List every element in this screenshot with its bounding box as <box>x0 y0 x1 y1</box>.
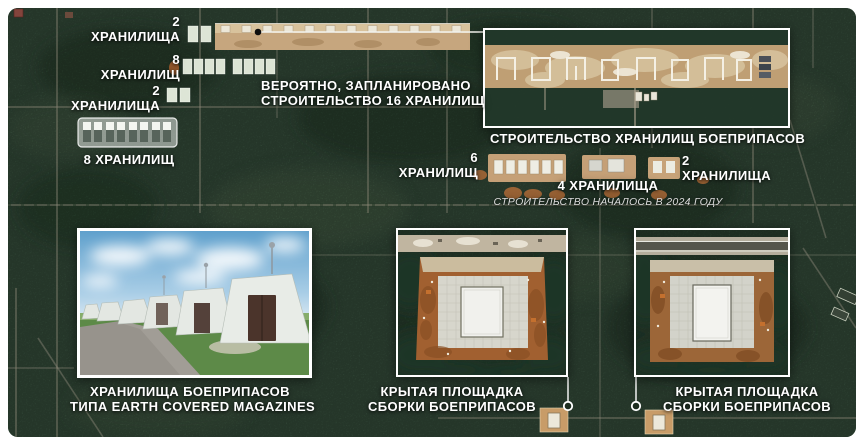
label-8-storages-row: 8 ХРАНИЛИЩ <box>61 152 197 167</box>
red-roof-building <box>14 9 23 17</box>
construction-started-note: СТРОИТЕЛЬСТВО НАЧАЛОСЬ В 2024 ГОДУ <box>468 195 748 210</box>
magazines-photo-inset <box>77 228 312 378</box>
label-noun: ХРАНИЛИЩА <box>91 29 180 44</box>
label-6-storages: 6 ХРАНИЛИЩ <box>370 150 478 180</box>
label-count: 2 <box>46 83 160 98</box>
label-count: 2 <box>682 153 812 168</box>
label-planned-construction: ВЕРОЯТНО, ЗАПЛАНИРОВАНО СТРОИТЕЛЬСТВО 16… <box>261 78 471 108</box>
construction-inset-art <box>485 30 788 126</box>
caption-line2: ТИПА EARTH COVERED MAGAZINES <box>70 399 315 414</box>
highlight-box-8-storages <box>78 118 177 147</box>
magazines-photo-art <box>80 231 309 375</box>
label-noun: ХРАНИЛИЩА <box>682 168 771 183</box>
annotated-satellite-graphic: 2 ХРАНИЛИЩА 8 ХРАНИЛИЩ 2 ХРАНИЛИЩА 8 ХРА… <box>0 0 864 445</box>
location-dot-marker <box>255 29 262 36</box>
assembly-left-art <box>398 230 566 375</box>
label-count: 6 <box>370 150 478 165</box>
label-count: 2 <box>66 14 180 29</box>
assembly-area-left-inset <box>396 228 568 377</box>
caption-line1: ХРАНИЛИЩА БОЕПРИПАСОВ <box>70 384 310 399</box>
assembly-left-caption: КРЫТАЯ ПЛОЩАДКА СБОРКИ БОЕПРИПАСОВ <box>332 384 572 414</box>
label-noun: ХРАНИЛИЩА <box>71 98 160 113</box>
caption-line1: КРЫТАЯ ПЛОЩАДКА <box>332 384 572 399</box>
long-building-under-construction <box>215 23 470 50</box>
label-8-storages-a: 8 ХРАНИЛИЩ <box>66 52 180 82</box>
satellite-map: 2 ХРАНИЛИЩА 8 ХРАНИЛИЩ 2 ХРАНИЛИЩА 8 ХРА… <box>8 8 856 437</box>
assembly-right-art <box>636 230 788 375</box>
label-2-storages-right: 2 ХРАНИЛИЩА <box>682 153 812 183</box>
label-noun: ХРАНИЛИЩ <box>101 67 180 82</box>
planned-line1: ВЕРОЯТНО, ЗАПЛАНИРОВАНО <box>261 78 471 93</box>
label-noun: ХРАНИЛИЩ <box>399 165 478 180</box>
caption-line1: КРЫТАЯ ПЛОЩАДКА <box>627 384 856 399</box>
planned-line2: СТРОИТЕЛЬСТВО 16 ХРАНИЛИЩ <box>261 93 485 108</box>
assembly-area-right-inset <box>634 228 790 377</box>
label-2-storages-a: 2 ХРАНИЛИЩА <box>66 14 180 44</box>
label-2-storages-b: 2 ХРАНИЛИЩА <box>46 83 160 113</box>
construction-inset-box <box>483 28 790 128</box>
caption-line2: СБОРКИ БОЕПРИПАСОВ <box>368 399 536 414</box>
caption-line2: СБОРКИ БОЕПРИПАСОВ <box>663 399 831 414</box>
label-count: 8 <box>66 52 180 67</box>
assembly-right-caption: КРЫТАЯ ПЛОЩАДКА СБОРКИ БОЕПРИПАСОВ <box>627 384 856 414</box>
label-4-storages: 4 ХРАНИЛИЩА <box>528 178 688 193</box>
magazines-photo-caption: ХРАНИЛИЩА БОЕПРИПАСОВ ТИПА EARTH COVERED… <box>70 384 310 414</box>
bunker-row-8a <box>169 59 275 75</box>
construction-box-caption: СТРОИТЕЛЬСТВО ХРАНИЛИЩ БОЕПРИПАСОВ <box>490 131 790 146</box>
